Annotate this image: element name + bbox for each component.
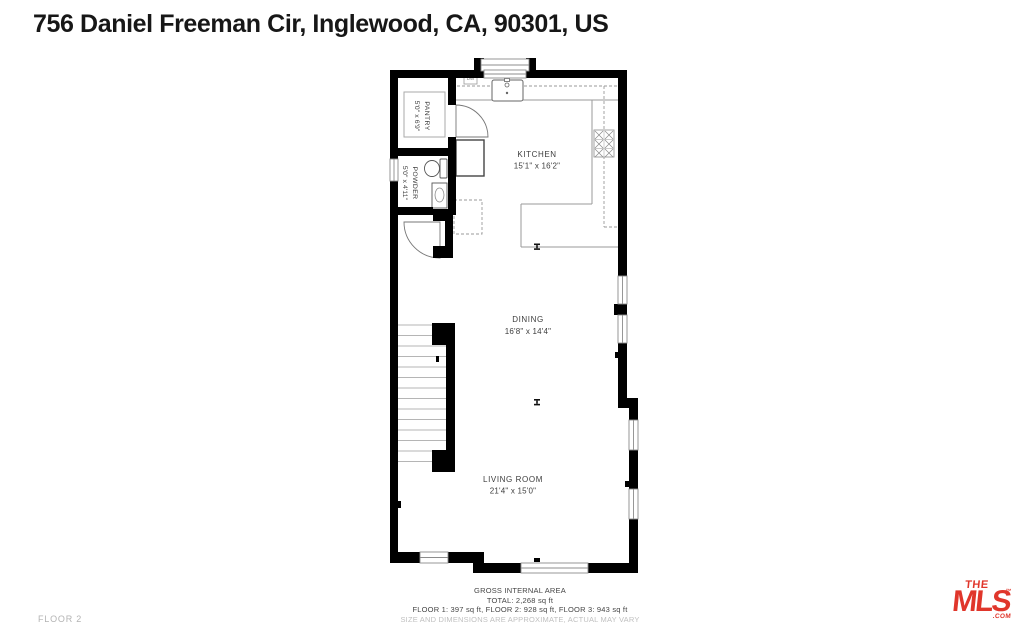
living-room-label: LIVING ROOM [483, 475, 543, 484]
floor-breakdown: FLOOR 1: 397 sq ft, FLOOR 2: 928 sq ft, … [320, 605, 720, 615]
bathroom-sink-icon [432, 183, 447, 208]
living-window-1 [629, 420, 638, 450]
powder-dims: 5'0" x 4'11" [401, 166, 408, 201]
pantry-label: PANTRY [423, 101, 430, 130]
staircase [398, 325, 446, 462]
living-window-2 [629, 489, 638, 519]
light-symbols [534, 244, 540, 406]
mls-logo-com: .COM [992, 613, 1011, 620]
total-area: TOTAL: 2,268 sq ft [320, 596, 720, 606]
stove-icon [594, 130, 614, 157]
living-window-4 [521, 563, 588, 573]
floor-label: FLOOR 2 [38, 614, 82, 624]
living-window-3 [420, 552, 448, 563]
dining-label: DINING [512, 315, 544, 324]
area-summary: GROSS INTERNAL AREA TOTAL: 2,268 sq ft F… [320, 586, 720, 624]
toilet-icon [425, 159, 448, 178]
kitchen-dims: 15'1" x 16'2" [514, 162, 560, 171]
powder-window [390, 159, 398, 181]
floorplan-page: 756 Daniel Freeman Cir, Inglewood, CA, 9… [0, 0, 1024, 640]
mls-logo: THE MLS ™ .COM [949, 579, 1016, 631]
powder-label: POWDER [411, 167, 418, 200]
bay-window [481, 59, 529, 78]
disclaimer: SIZE AND DIMENSIONS ARE APPROXIMATE, ACT… [320, 615, 720, 625]
kitchen-label: KITCHEN [517, 150, 556, 159]
dining-dims: 16'8" x 14'4" [505, 327, 551, 336]
kitchen-sink-icon [492, 79, 523, 102]
floor-plan-drawing: DW [0, 0, 1024, 640]
mls-logo-tm: ™ [1005, 589, 1012, 595]
refrigerator-icon [456, 140, 484, 176]
living-room-dims: 21'4" x 15'0" [490, 487, 536, 496]
dining-window-2 [618, 315, 627, 343]
pantry-dims: 5'0" x 6'9" [413, 101, 420, 132]
dining-light-symbol [534, 399, 540, 405]
dining-window-1 [618, 276, 627, 304]
gross-area-title: GROSS INTERNAL AREA [320, 586, 720, 596]
pantry-door [456, 105, 488, 137]
